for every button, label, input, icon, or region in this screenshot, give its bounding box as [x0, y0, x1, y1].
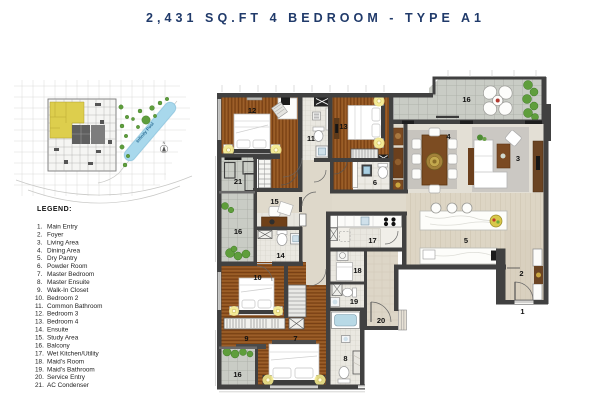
- svg-text:1.Main Entry: 1.Main Entry: [37, 224, 78, 231]
- svg-text:2,431 SQ.FT 4 BEDROOM - TYPE A: 2,431 SQ.FT 4 BEDROOM - TYPE A1: [146, 11, 485, 25]
- svg-text:6.Powder Room: 6.Powder Room: [37, 263, 88, 270]
- svg-text:11.Common Bathroom: 11.Common Bathroom: [35, 303, 102, 310]
- svg-text:3.Living Area: 3.Living Area: [37, 239, 79, 246]
- svg-text:15: 15: [270, 197, 278, 206]
- svg-text:18: 18: [353, 266, 361, 275]
- svg-text:LEGEND:: LEGEND:: [37, 206, 72, 213]
- svg-text:13: 13: [339, 122, 347, 131]
- svg-text:19.Maid's Bathroom: 19.Maid's Bathroom: [35, 366, 95, 373]
- svg-text:14: 14: [276, 251, 285, 260]
- svg-text:8.Master Ensuite: 8.Master Ensuite: [37, 279, 90, 286]
- svg-text:5: 5: [464, 236, 468, 245]
- svg-text:10.Bedroom 2: 10.Bedroom 2: [35, 295, 79, 302]
- svg-text:12.Bedroom 3: 12.Bedroom 3: [35, 311, 79, 318]
- svg-text:21: 21: [234, 177, 242, 186]
- svg-text:14.Ensuite: 14.Ensuite: [35, 327, 69, 334]
- svg-text:16: 16: [234, 227, 242, 236]
- svg-text:16: 16: [233, 370, 241, 379]
- svg-text:16.Balcony: 16.Balcony: [35, 343, 71, 350]
- svg-text:18.Maid's Room: 18.Maid's Room: [35, 358, 84, 365]
- svg-text:8: 8: [343, 354, 347, 363]
- svg-text:19: 19: [350, 297, 358, 306]
- svg-text:11: 11: [307, 134, 315, 143]
- svg-text:20: 20: [377, 316, 385, 325]
- svg-text:9: 9: [244, 334, 248, 343]
- svg-text:10: 10: [253, 273, 261, 282]
- svg-text:13.Bedroom 4: 13.Bedroom 4: [35, 319, 79, 326]
- svg-text:20.Service Entry: 20.Service Entry: [35, 374, 86, 381]
- svg-text:9.Walk-In Closet: 9.Walk-In Closet: [37, 287, 89, 294]
- svg-text:7.Master Bedroom: 7.Master Bedroom: [37, 271, 94, 278]
- svg-text:16: 16: [462, 95, 470, 104]
- svg-text:17: 17: [368, 236, 376, 245]
- svg-text:15.Study Area: 15.Study Area: [35, 335, 79, 342]
- svg-text:6: 6: [373, 178, 377, 187]
- svg-text:7: 7: [293, 334, 297, 343]
- svg-text:17.Wet Kitchen/Utility: 17.Wet Kitchen/Utility: [35, 350, 100, 357]
- svg-text:2.Foyer: 2.Foyer: [37, 231, 64, 238]
- svg-text:21.AC Condenser: 21.AC Condenser: [35, 382, 90, 389]
- svg-text:12: 12: [248, 106, 256, 115]
- svg-text:4.Dining Area: 4.Dining Area: [37, 247, 80, 254]
- svg-text:3: 3: [516, 154, 520, 163]
- svg-text:2: 2: [519, 269, 523, 278]
- svg-text:N: N: [163, 141, 166, 145]
- svg-text:5.Dry Pantry: 5.Dry Pantry: [37, 255, 78, 262]
- svg-text:1: 1: [520, 307, 524, 316]
